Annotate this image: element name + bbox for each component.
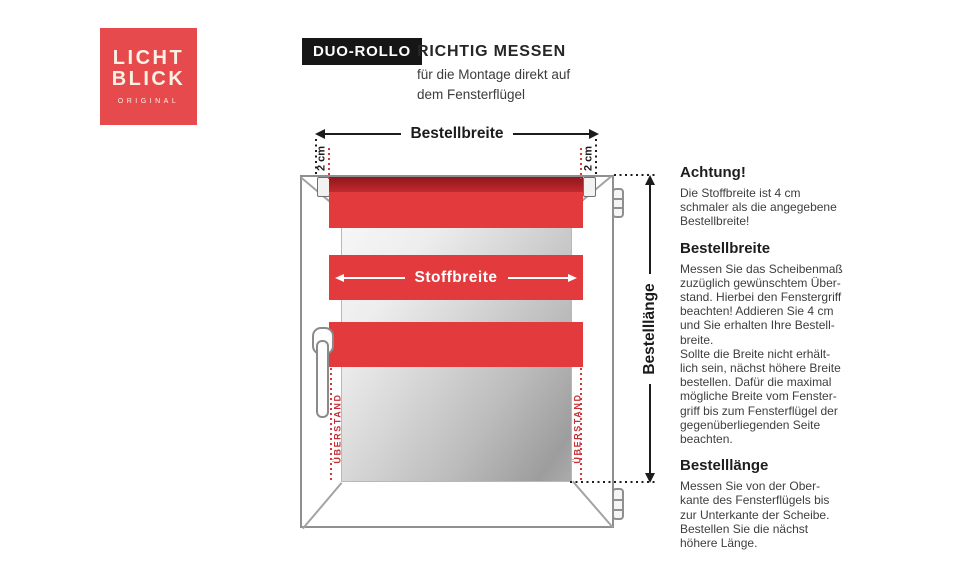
window-handle-lever-icon <box>316 340 329 418</box>
ueberstand-label-right: ÜBERSTAND <box>573 373 584 485</box>
bestelllaenge-label: Bestelllänge <box>641 283 659 374</box>
stoffbreite-arrow: Stoffbreite <box>329 255 583 300</box>
logo-text-licht: LICHT <box>113 48 184 69</box>
section-heading-bestellbreite: Bestellbreite <box>680 240 875 257</box>
two-cm-label-right: 2 cm <box>583 142 596 176</box>
fabric-stripe-1 <box>329 192 583 228</box>
info-column: Achtung! Die Stoffbreite ist 4 cm schmal… <box>680 164 875 561</box>
arrowhead-right-icon <box>589 129 599 139</box>
ueberstand-label-left: ÜBERSTAND <box>333 373 344 485</box>
section-body-achtung: Die Stoffbreite ist 4 cm schmaler als di… <box>680 186 875 229</box>
roller-bracket-right <box>583 177 596 197</box>
arrowhead-left-icon <box>315 129 325 139</box>
infographic-page: LICHT BLICK ORIGINAL DUO-ROLLO RICHTIG M… <box>0 0 960 587</box>
fabric-stripe-3 <box>329 322 583 367</box>
logo-text-blick: BLICK <box>112 69 186 90</box>
section-body-bestellbreite: Messen Sie das Scheibenmaß zuzüglich gew… <box>680 262 875 447</box>
bestelllaenge-arrow: Bestelllänge <box>641 175 659 483</box>
hinge-top-icon <box>612 188 624 218</box>
bestellbreite-label: Bestellbreite <box>410 125 503 143</box>
lichtblick-logo: LICHT BLICK ORIGINAL <box>100 28 197 125</box>
section-body-bestelllaenge: Messen Sie von der Ober- kante des Fenst… <box>680 479 875 550</box>
section-heading-achtung: Achtung! <box>680 164 875 181</box>
arrowhead-right-icon <box>568 274 577 282</box>
arrowhead-top-icon <box>645 175 655 185</box>
page-title: RICHTIG MESSEN <box>417 43 566 61</box>
bestellbreite-arrow: Bestellbreite <box>315 126 599 141</box>
section-heading-bestelllaenge: Bestelllänge <box>680 457 875 474</box>
fabric-stripe-2: Stoffbreite <box>329 255 583 300</box>
hinge-bottom-icon <box>612 488 624 520</box>
stoffbreite-label: Stoffbreite <box>415 269 498 287</box>
product-badge: DUO-ROLLO <box>302 38 422 65</box>
arrowhead-bottom-icon <box>645 473 655 483</box>
logo-text-original: ORIGINAL <box>118 98 179 105</box>
arrowhead-left-icon <box>335 274 344 282</box>
page-subtitle: für die Montage direkt auf dem Fensterfl… <box>417 65 570 104</box>
roller-tube <box>329 177 583 192</box>
two-cm-label-left: 2 cm <box>316 142 329 176</box>
